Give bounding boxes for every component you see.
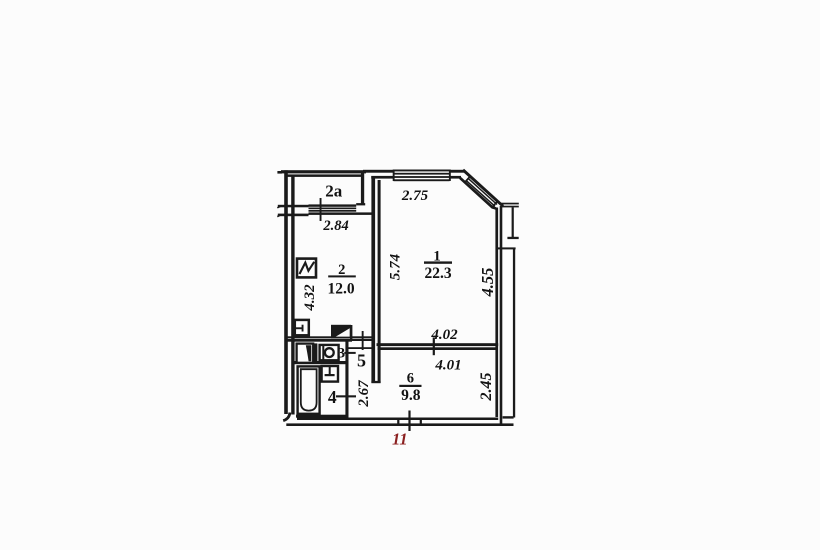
svg-text:5.74: 5.74 [388, 253, 404, 280]
svg-text:2.45: 2.45 [478, 373, 495, 402]
svg-text:6: 6 [407, 371, 414, 387]
svg-text:2.84: 2.84 [322, 218, 348, 234]
svg-text:2a: 2a [325, 182, 343, 201]
svg-text:3: 3 [338, 346, 346, 362]
svg-text:4: 4 [328, 387, 337, 407]
svg-text:4.32: 4.32 [302, 284, 318, 312]
svg-text:5: 5 [357, 350, 366, 370]
svg-text:2.67: 2.67 [356, 380, 372, 408]
svg-text:2.75: 2.75 [401, 188, 429, 204]
svg-text:4.01: 4.01 [434, 358, 461, 374]
svg-text:22.3: 22.3 [424, 265, 451, 282]
svg-text:4.55: 4.55 [478, 268, 497, 298]
svg-text:9.8: 9.8 [401, 387, 421, 404]
svg-text:12.0: 12.0 [327, 281, 354, 298]
svg-text:11: 11 [392, 430, 408, 449]
